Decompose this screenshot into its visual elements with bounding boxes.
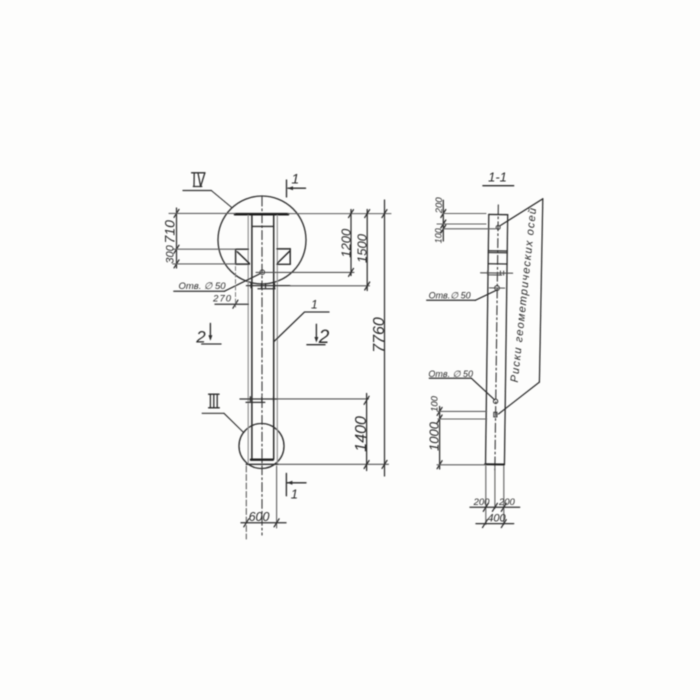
svg-text:1: 1 [311, 297, 318, 311]
svg-text:200: 200 [498, 497, 516, 508]
svg-text:600: 600 [249, 510, 270, 524]
svg-text:1500: 1500 [354, 233, 369, 263]
svg-text:Риски геометрических осей: Риски геометрических осей [509, 206, 539, 383]
svg-text:Отв.∅ 50: Отв.∅ 50 [429, 290, 471, 300]
svg-text:100: 100 [430, 395, 441, 412]
svg-text:300: 300 [165, 244, 177, 263]
svg-text:100: 100 [434, 228, 444, 243]
svg-text:1-1: 1-1 [488, 169, 507, 184]
svg-text:270: 270 [212, 293, 232, 304]
svg-text:1000: 1000 [426, 421, 441, 451]
svg-text:200: 200 [473, 497, 491, 508]
svg-text:7760: 7760 [371, 317, 388, 353]
svg-text:1: 1 [291, 487, 298, 502]
svg-text:1200: 1200 [339, 228, 354, 258]
svg-text:1: 1 [291, 171, 299, 187]
svg-text:200: 200 [434, 197, 445, 215]
svg-text:400: 400 [487, 513, 506, 525]
svg-text:Отв. ∅ 50: Отв. ∅ 50 [428, 369, 473, 379]
svg-text:Отв. ∅ 50: Отв. ∅ 50 [178, 281, 226, 292]
svg-text:1400: 1400 [353, 416, 370, 452]
svg-text:710: 710 [162, 220, 178, 244]
